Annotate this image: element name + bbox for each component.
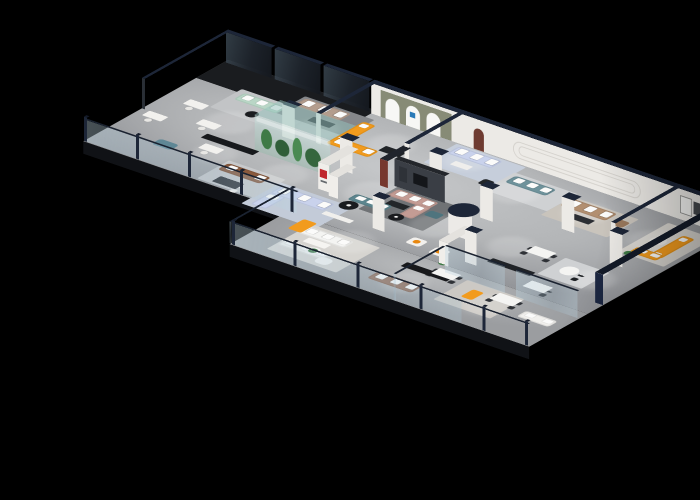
sofa-pillow xyxy=(301,100,316,107)
sofa-pillow xyxy=(408,196,422,202)
sofa-pillow xyxy=(337,239,351,245)
partition-white-logo-front xyxy=(318,162,329,193)
sofa-pillow xyxy=(599,211,614,218)
partition-white-curve-front xyxy=(329,174,338,199)
sofa-pillow xyxy=(395,191,409,197)
sofa-pillow xyxy=(321,234,335,240)
sofa-pillow xyxy=(358,123,370,128)
wall-decor xyxy=(399,166,407,183)
sofa-pillow xyxy=(512,178,526,184)
sofa-pillow xyxy=(484,159,499,166)
sofa-pillow xyxy=(412,205,425,210)
sofa-pillow xyxy=(355,196,368,201)
sofa-pillow xyxy=(454,148,469,155)
sofa-pillow xyxy=(241,95,255,101)
sofa-pillow xyxy=(297,195,312,202)
wall-decor xyxy=(413,173,427,189)
panel-red-curved-front xyxy=(380,159,388,189)
pillar-front xyxy=(562,196,575,233)
sofa-pillow xyxy=(524,313,537,318)
pillar-front xyxy=(373,196,385,232)
wall-decor xyxy=(680,195,692,217)
pillar-front xyxy=(480,185,493,222)
sofa-pillow xyxy=(539,187,553,193)
sofa-pillow xyxy=(678,237,689,242)
wall-right-end-front xyxy=(595,272,603,305)
wall-decor xyxy=(320,169,327,180)
sofa-pillow xyxy=(469,154,484,161)
sofa-pillow xyxy=(317,201,332,208)
wall-decor xyxy=(261,127,272,151)
sofa-pillow xyxy=(305,228,319,234)
sofa-pillow xyxy=(333,111,348,118)
wall-decor xyxy=(275,138,289,159)
sofa-pillow xyxy=(526,182,540,188)
showroom-render xyxy=(0,0,700,500)
glass-partition-right-3-front xyxy=(394,273,396,301)
floor-plane xyxy=(25,60,700,347)
sofa-pillow xyxy=(541,319,554,324)
wall-decor xyxy=(321,180,327,184)
sofa-pillow xyxy=(583,206,598,213)
side-wall-west-front xyxy=(142,78,145,110)
sofa-pillow xyxy=(361,148,375,154)
wall-decor xyxy=(293,136,302,163)
sofa-pillow xyxy=(255,100,269,106)
wall-decor xyxy=(474,127,484,152)
